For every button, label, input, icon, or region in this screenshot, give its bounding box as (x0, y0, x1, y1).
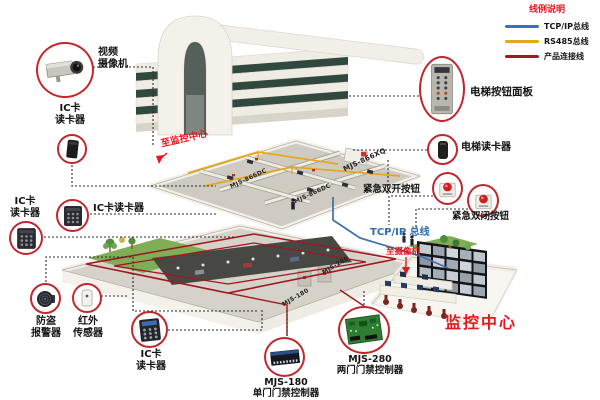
product-line-swatch (505, 55, 539, 59)
video-camera-icon (41, 48, 89, 92)
pcb-board-icon (342, 309, 386, 351)
rs485-line-swatch (505, 40, 539, 44)
ic-card-reader-1-device (57, 134, 87, 164)
to-monitoring-arrow (156, 153, 167, 164)
ic-card-reader-4-device (131, 311, 168, 348)
monitoring-center-label: 监控中心 (445, 314, 517, 333)
legend-item-rs485: RS485总线 (505, 36, 597, 47)
legend-item-product: 产品连接线 (505, 51, 597, 62)
legend-title: 线例说明 (529, 2, 597, 15)
elevator-panel-device (419, 56, 465, 122)
elevator-panel-icon (423, 60, 461, 118)
card-reader-icon (60, 137, 84, 161)
ic-card-reader-3-device (9, 221, 43, 255)
mjs180-controller-device (264, 337, 305, 377)
card-reader-icon (431, 138, 455, 162)
emergency-open-label: 紧急双开按钮 (363, 184, 420, 195)
controller-board-icon (268, 340, 302, 374)
mjs280-label: MJS-280 两门门禁控制器 (322, 354, 418, 376)
emergency-button-icon (471, 188, 496, 214)
burglar-alarm-device (30, 283, 61, 314)
siren-icon (34, 287, 58, 311)
tcpip-line-swatch (505, 25, 539, 29)
ir-sensor-label: 红外 传感器 (68, 316, 108, 340)
building-tower (136, 16, 424, 135)
mjs280-controller-device (338, 306, 390, 354)
emergency-open-button-device (432, 172, 463, 205)
legend-item-label: RS485总线 (544, 36, 589, 47)
keypad-reader-icon (13, 225, 40, 252)
lcd-keypad-icon (135, 315, 165, 345)
emergency-button-icon (435, 176, 460, 202)
ic-reader-1-label: IC卡 读卡器 (50, 103, 90, 127)
legend: 线例说明 TCP/IP总线 RS485总线 产品连接线 (505, 2, 597, 66)
elevator-reader-device (427, 134, 458, 165)
ir-sensor-device (72, 283, 102, 313)
tcpip-bus-label: TCP/IP 总线 (370, 227, 430, 239)
legend-item-tcpip: TCP/IP总线 (505, 21, 597, 32)
ic-reader-4-label: IC卡 读卡器 (132, 349, 170, 373)
ic-reader-3-label: IC卡 读卡器 (4, 196, 46, 220)
ic-reader-2-label: IC卡读卡器 (93, 203, 144, 215)
ic-card-reader-2-device (56, 199, 89, 232)
emergency-close-label: 紧急双闭按钮 (452, 211, 509, 222)
camera-label: 视频 摄像机 (98, 47, 128, 71)
diagram-canvas: 线例说明 TCP/IP总线 RS485总线 产品连接线 (0, 0, 600, 400)
legend-item-label: TCP/IP总线 (544, 21, 589, 32)
ir-sensor-icon (75, 286, 99, 310)
mjs180-label: MJS-180 单门门禁控制器 (238, 377, 334, 399)
video-camera-device (36, 42, 94, 98)
elevator-reader-label: 电梯读卡器 (461, 142, 511, 154)
to-camera-label: 至摄像机 (386, 247, 420, 257)
elevator-panel-label: 电梯按钮面板 (470, 86, 533, 98)
keypad-reader-icon (60, 203, 86, 229)
legend-item-label: 产品连接线 (544, 51, 584, 62)
burglar-alarm-label: 防盗 报警器 (24, 316, 68, 340)
